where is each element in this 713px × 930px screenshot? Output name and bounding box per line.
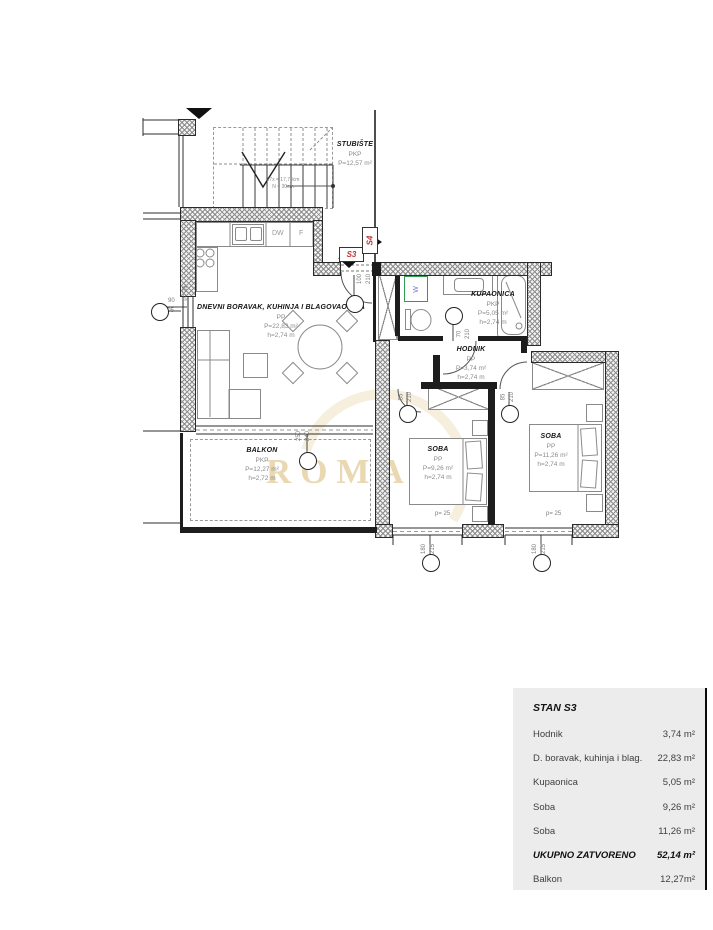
table-row-total: UKUPNO ZATVORENO52,14 m² bbox=[533, 850, 695, 861]
area-table-title: STAN S3 bbox=[533, 702, 695, 714]
room-label-kupaonica: KUPAONICA PKP P=5,05 m² h=2,74 m bbox=[471, 290, 515, 327]
wall bbox=[421, 382, 497, 389]
dim-marker bbox=[445, 307, 463, 325]
unit-tag-s3: S3 bbox=[339, 247, 364, 262]
dim-balconydoor-h: 240 bbox=[303, 423, 313, 449]
wall bbox=[462, 524, 504, 538]
dim-marker bbox=[299, 452, 317, 470]
wall bbox=[313, 220, 323, 265]
dim-marker bbox=[346, 295, 364, 313]
room-label-stubiste: STUBIŠTE PKP P=12,57 m² bbox=[337, 140, 373, 168]
wall bbox=[488, 382, 495, 525]
table-row: Kupaonica5,05 m² bbox=[533, 777, 695, 788]
room-label-soba1: SOBA PP P=9,26 m² h=2,74 m bbox=[423, 445, 453, 482]
dim-entry-h: 210 bbox=[364, 266, 374, 292]
floor-plan-page: ROMANO W bbox=[0, 0, 713, 930]
dishwasher-label: DW bbox=[272, 230, 284, 237]
dim-marker bbox=[422, 554, 440, 572]
unit-tag-s4: S4 bbox=[362, 227, 378, 254]
table-row: Soba11,26 m² bbox=[533, 826, 695, 837]
wall bbox=[180, 207, 323, 222]
wall bbox=[605, 351, 619, 533]
area-table: STAN S3 Hodnik3,74 m² D. boravak, kuhinj… bbox=[513, 688, 707, 890]
dim-marker bbox=[399, 405, 417, 423]
wall bbox=[531, 351, 608, 363]
table-row: Soba9,26 m² bbox=[533, 802, 695, 813]
table-row: D. boravak, kuhinja i blag.22,83 m² bbox=[533, 753, 695, 764]
wall bbox=[178, 119, 196, 136]
wall bbox=[375, 340, 390, 533]
dim-marker bbox=[151, 303, 169, 321]
wall bbox=[398, 336, 443, 341]
stair-note: 17x = 17,78cm N = 30cm bbox=[267, 177, 300, 191]
table-row: Hodnik3,74 m² bbox=[533, 729, 695, 740]
dim-parapet-window2: p= 25 bbox=[546, 511, 561, 517]
stair-direction-marker bbox=[186, 108, 212, 119]
room-label-balkon: BALKON PKP P=12,27 m² h=2,72 m bbox=[245, 446, 279, 483]
wall bbox=[180, 327, 196, 432]
fridge-label: F bbox=[299, 230, 303, 237]
room-label-soba2: SOBA PP P=11,26 m² h=2,74 m bbox=[534, 432, 567, 469]
wall bbox=[313, 262, 341, 276]
dim-window-left-w: 90 bbox=[168, 298, 175, 304]
dim-bathdoor-h: 210 bbox=[463, 321, 473, 347]
room-label-hodnik: HODNIK PP P=3,74 m² h=2,74 m bbox=[456, 345, 486, 382]
dim-parapet-window1: p= 25 bbox=[435, 511, 450, 517]
dim-parapet-left: p= 25 bbox=[181, 280, 191, 306]
wall bbox=[572, 524, 619, 538]
wall bbox=[395, 276, 400, 336]
wall bbox=[433, 355, 440, 383]
wall bbox=[375, 524, 393, 538]
wall bbox=[521, 340, 527, 353]
table-row: Balkon12,27m² bbox=[533, 874, 695, 885]
room-label-living: DNEVNI BORAVAK, KUHINJA I BLAGOVAONICA P… bbox=[197, 303, 365, 340]
dim-marker bbox=[501, 405, 519, 423]
balcony-parapet bbox=[180, 527, 377, 533]
dim-marker bbox=[533, 554, 551, 572]
balcony-parapet bbox=[180, 433, 183, 528]
wall bbox=[527, 262, 541, 346]
wall bbox=[478, 336, 527, 341]
